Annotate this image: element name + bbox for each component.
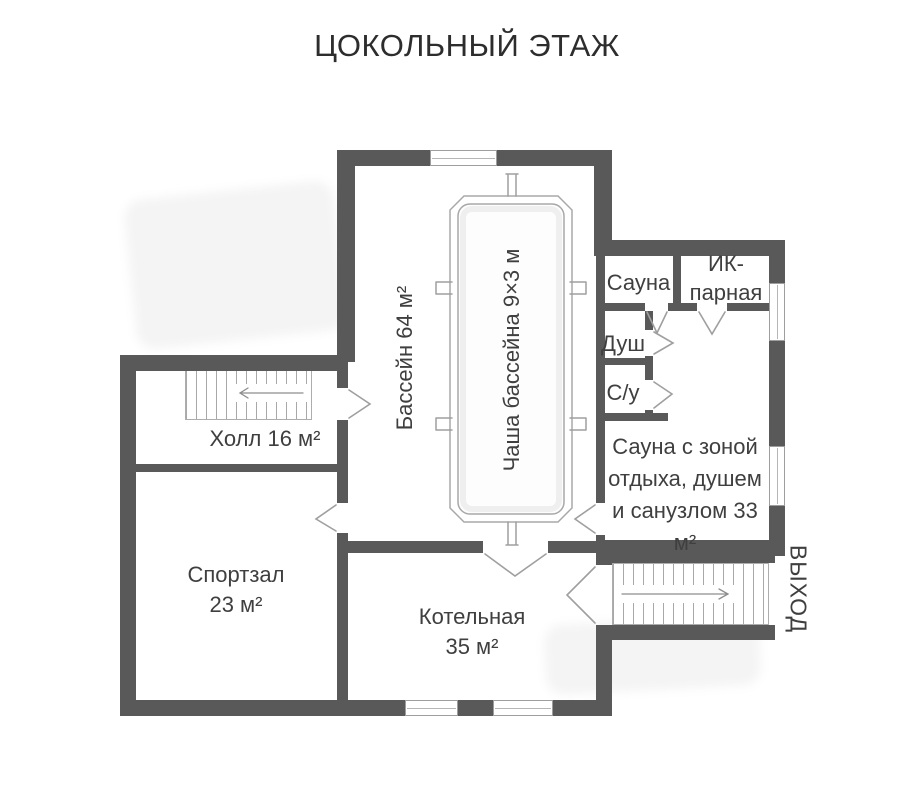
room-label-ir-steam: ИК-парная xyxy=(680,249,772,307)
room-label-sauna-lounge: Сауна с зоной отдыха, душем и санузлом 3… xyxy=(600,431,770,559)
door-swing-boiler-double xyxy=(485,554,546,576)
wall-segment xyxy=(769,341,785,446)
exit-label: ВЫХОД xyxy=(785,545,812,633)
wall-segment xyxy=(347,541,483,553)
pool-ladder-icon xyxy=(570,282,586,294)
page-title: ЦОКОЛЬНЫЙ ЭТАЖ xyxy=(34,28,900,64)
door-swing-wc xyxy=(654,382,672,408)
wall-segment xyxy=(120,355,348,371)
pool-ladder-icon xyxy=(436,418,452,430)
door-swing-shower xyxy=(654,332,673,354)
window xyxy=(405,700,458,716)
stairs-exit-arrow-band xyxy=(618,585,734,603)
wall-segment xyxy=(458,700,493,716)
wall-segment xyxy=(604,413,668,421)
pool-bowl-label: Чаша бассейна 9×3 м xyxy=(499,249,525,472)
pool-ladder-icon xyxy=(506,522,518,545)
wall-segment xyxy=(548,541,596,553)
wall-segment xyxy=(604,625,775,640)
door-swing-pool-lounge xyxy=(575,505,595,533)
wall-segment xyxy=(337,420,348,503)
room-label-gym: Спортзал 23 м² xyxy=(176,560,296,620)
door-swing-ir-steam xyxy=(699,312,725,334)
room-label-pool: Бассейн 64 м² xyxy=(392,286,418,431)
wall-segment xyxy=(337,362,348,388)
room-label-shower: Душ xyxy=(600,329,646,359)
door-swing-gym xyxy=(316,505,336,531)
window xyxy=(430,150,497,166)
room-label-sauna: Сауна xyxy=(604,268,673,298)
window xyxy=(493,700,553,716)
room-label-wc: С/у xyxy=(600,378,646,408)
wall-segment xyxy=(337,150,355,362)
door-swing-boiler-exit xyxy=(567,567,595,623)
wall-segment xyxy=(645,356,653,380)
wall-segment xyxy=(337,533,348,700)
floor-plan: ЦОКОЛЬНЫЙ ЭТАЖ xyxy=(0,0,900,800)
wall-segment xyxy=(136,464,348,472)
pool-ladder-icon xyxy=(570,418,586,430)
wall-segment xyxy=(120,355,136,716)
watermark xyxy=(123,179,348,350)
pool-ladder-icon xyxy=(506,174,518,196)
wall-segment xyxy=(645,311,653,330)
pool-ladder-icon xyxy=(436,282,452,294)
door-swing-hall xyxy=(349,390,370,418)
wall-segment xyxy=(604,303,645,311)
room-label-boiler: Котельная 35 м² xyxy=(407,602,537,662)
wall-segment xyxy=(604,358,645,365)
window xyxy=(769,446,785,506)
stairs-hall-arrow-band xyxy=(236,384,310,402)
wall-segment xyxy=(120,700,405,716)
room-label-hall: Холл 16 м² xyxy=(195,424,335,454)
